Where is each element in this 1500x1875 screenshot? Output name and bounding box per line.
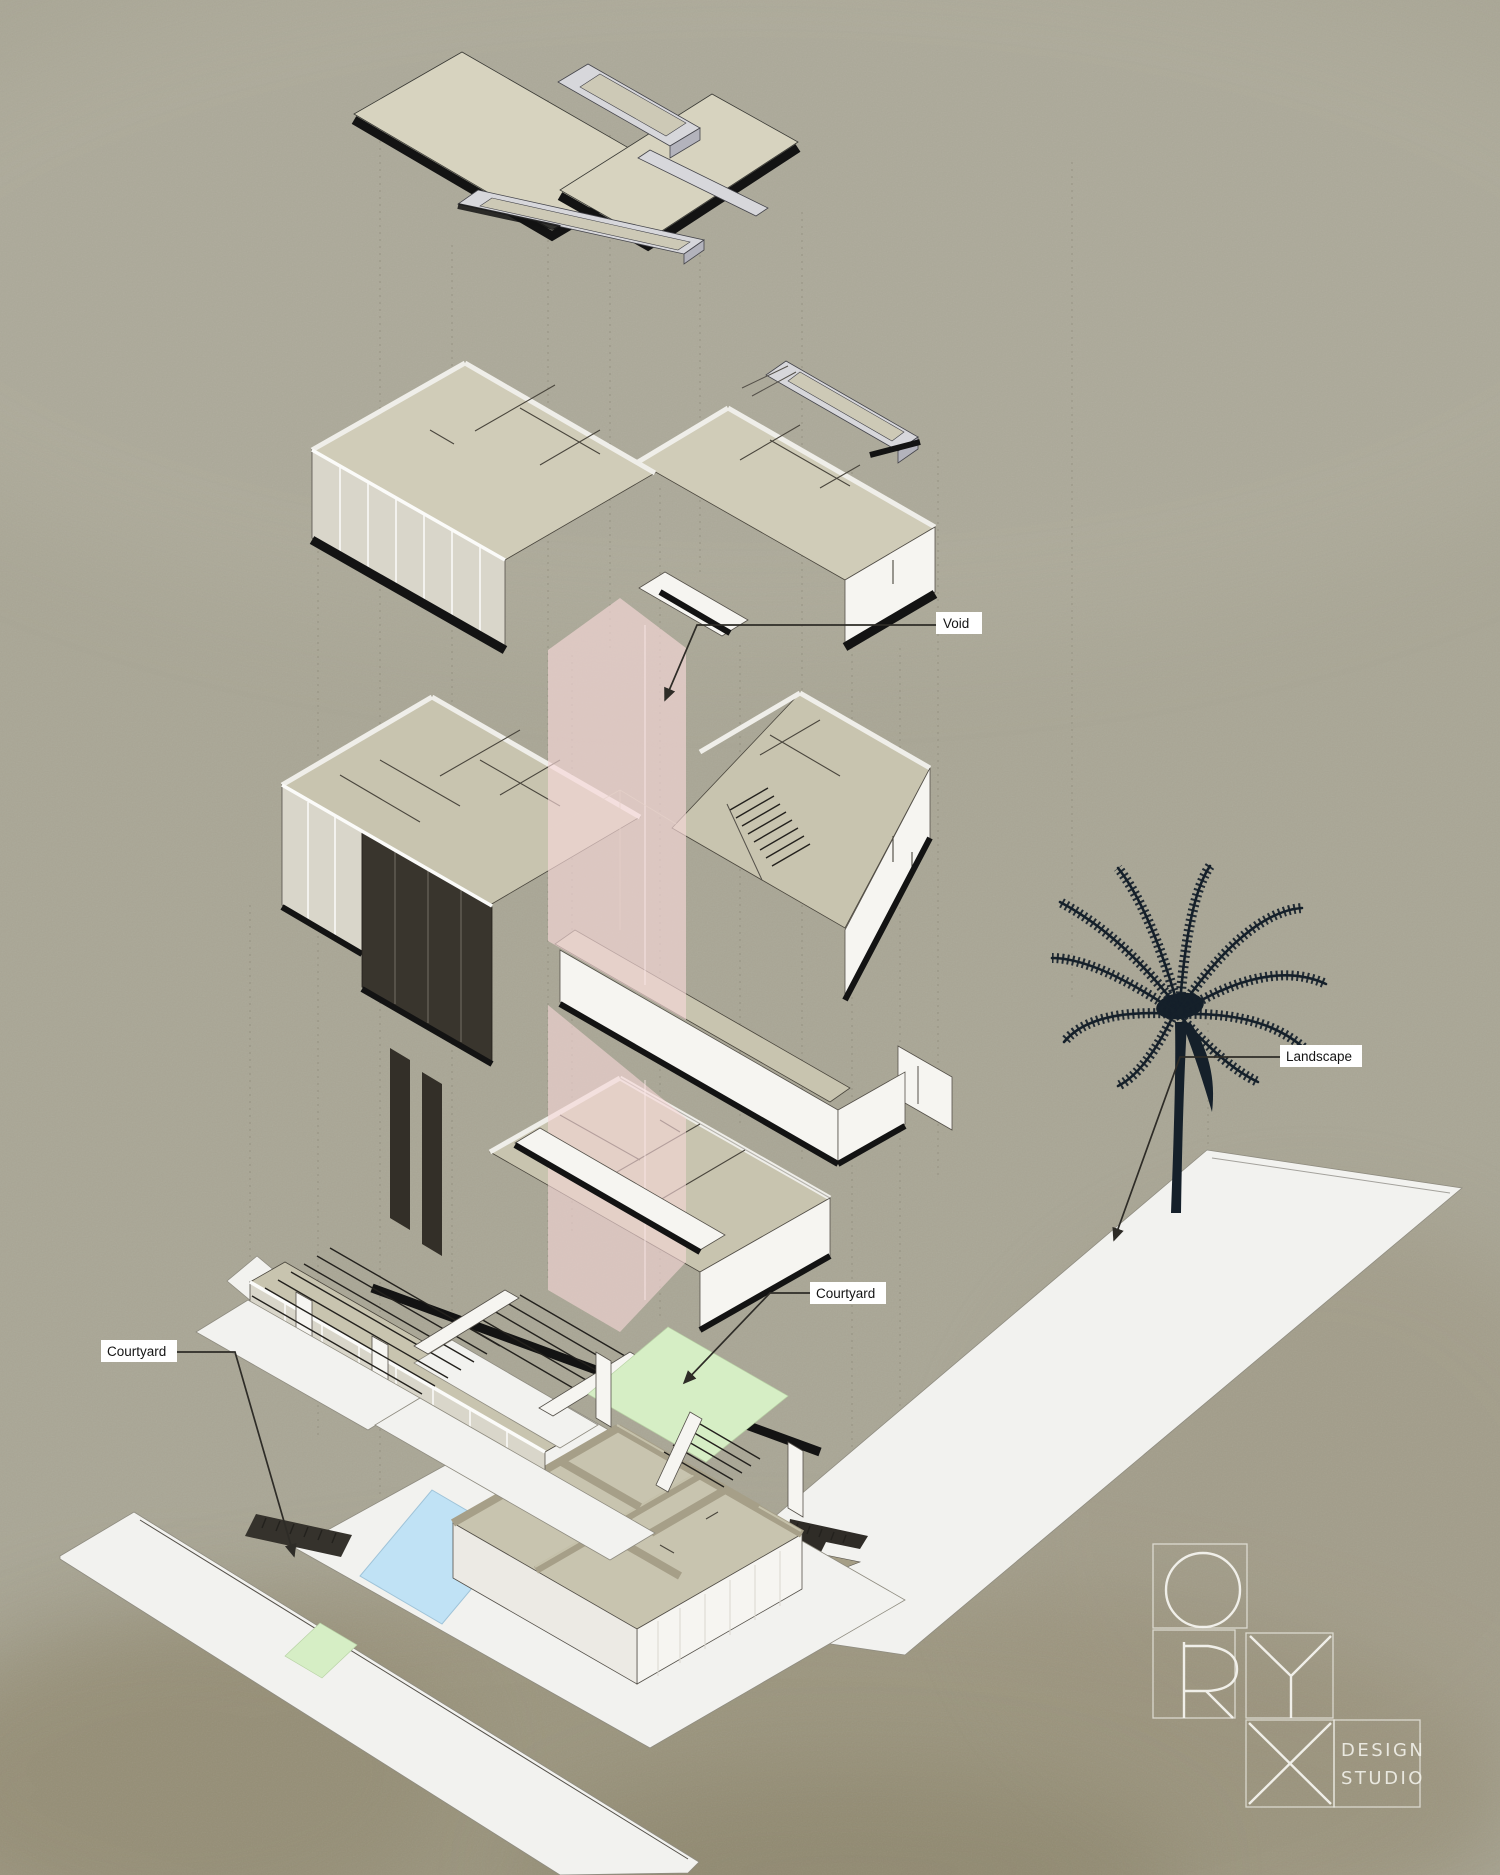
courtyard-left-label-text: Courtyard	[107, 1344, 166, 1359]
void-label: Void	[936, 612, 982, 634]
void-label-text: Void	[943, 616, 969, 631]
courtyard-left-label: Courtyard	[101, 1340, 177, 1362]
logo-studio-line2: STUDIO	[1341, 1768, 1425, 1789]
courtyard-mid-label-text: Courtyard	[816, 1286, 875, 1301]
landscape-label: Landscape	[1280, 1045, 1362, 1067]
landscape-label-text: Landscape	[1286, 1049, 1352, 1064]
courtyard-mid-label: Courtyard	[810, 1282, 886, 1304]
logo-studio-line1: DESIGN	[1341, 1740, 1425, 1761]
exploded-axonometric-poster: Void Landscape Courtyard Courtyard DESIG…	[0, 0, 1500, 1875]
diagram-canvas: Void Landscape Courtyard Courtyard DESIG…	[0, 0, 1500, 1875]
